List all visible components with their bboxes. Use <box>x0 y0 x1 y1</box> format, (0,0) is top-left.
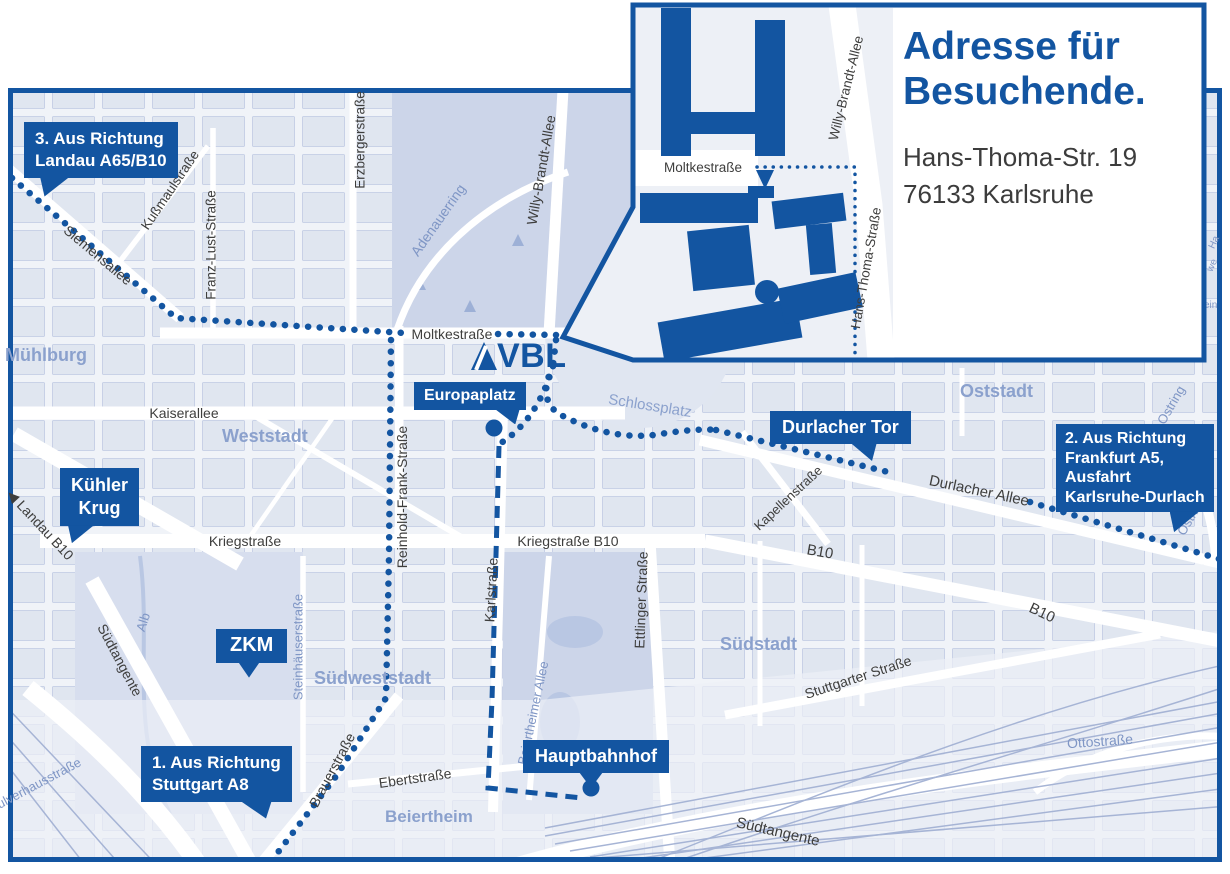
inset-street-moltkestrasse: Moltkestraße <box>664 160 742 175</box>
address-inset-panel <box>0 0 1230 874</box>
inset-title: Adresse für Besuchende. <box>903 24 1146 114</box>
vbl-directions-map: Mühlburg Weststadt Oststadt Südstadt Süd… <box>0 0 1230 874</box>
inset-address: Hans-Thoma-Str. 19 76133 Karlsruhe <box>903 139 1137 213</box>
